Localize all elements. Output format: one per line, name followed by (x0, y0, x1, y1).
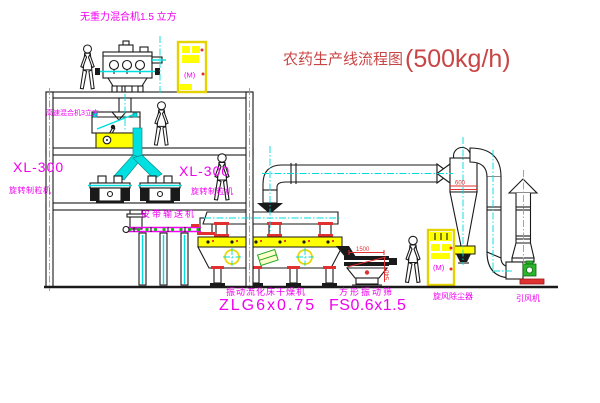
dryer-legs (210, 266, 337, 287)
cyclone-dia-dim: 600 (455, 181, 466, 187)
person-second-floor (154, 102, 168, 145)
cabinet-bottom-motor-mark: (M) (433, 263, 445, 272)
cyclone-discharge (452, 246, 475, 254)
diagram-title: 农药生产线流程图 (500kg/h) (283, 47, 511, 72)
label-sieve-name: 方形振动筛 (339, 288, 394, 297)
sieve-vibration-motor (389, 258, 397, 265)
label-cyclone: 旋风除尘器 (433, 293, 473, 301)
sieve-width-dim: 1500 (356, 247, 370, 253)
label-granulator-right-model: XL-300 (179, 164, 230, 178)
label-granulator-left-name: 旋转制粒机 (9, 187, 52, 195)
cabinet-top-motor-mark: (M) (184, 71, 196, 80)
label-high-speed-mixer: 高速混合机3立方 (46, 110, 99, 117)
exhaust-duct (257, 163, 450, 214)
label-granulator-left-model: XL-300 (13, 160, 64, 174)
dryer-bed-band (198, 237, 342, 247)
stack-cap (509, 179, 537, 193)
label-dryer-name: 振动流化床干燥机 (226, 288, 306, 297)
label-zero-gravity-mixer: 无重力混合机1.5 立方 (80, 13, 177, 23)
label-fan: 引风机 (516, 295, 540, 303)
granulator-right (138, 176, 182, 204)
label-sieve-model: FS0.6x1.5 (329, 298, 406, 314)
belt-conveyor (123, 224, 201, 285)
person-roof (80, 45, 94, 89)
sieve-height-dim: 540 (385, 269, 391, 280)
control-cabinet-top (178, 42, 206, 92)
diagram-title-capacity: (500kg/h) (405, 47, 511, 72)
label-dryer-model: ZLG6x0.75 (219, 298, 316, 314)
induced-draft-fan (506, 261, 544, 284)
fluid-bed-dryer (197, 212, 342, 287)
exhaust-stack (509, 179, 537, 262)
label-belt-conveyor: 皮带输送机 (141, 210, 196, 219)
granulator-left (88, 176, 132, 204)
diagram-title-text: 农药生产线流程图 (283, 52, 403, 67)
zero-gravity-mixer (95, 41, 166, 92)
flow-diagram-canvas: 1500 540 600 (M) (M) 农药生产线流程图 (500kg/h) … (0, 0, 600, 403)
fan-base (520, 279, 544, 284)
person-ground (406, 236, 421, 282)
control-cabinet-bottom (428, 230, 454, 285)
label-granulator-right-name: 旋转制粒机 (191, 188, 234, 196)
